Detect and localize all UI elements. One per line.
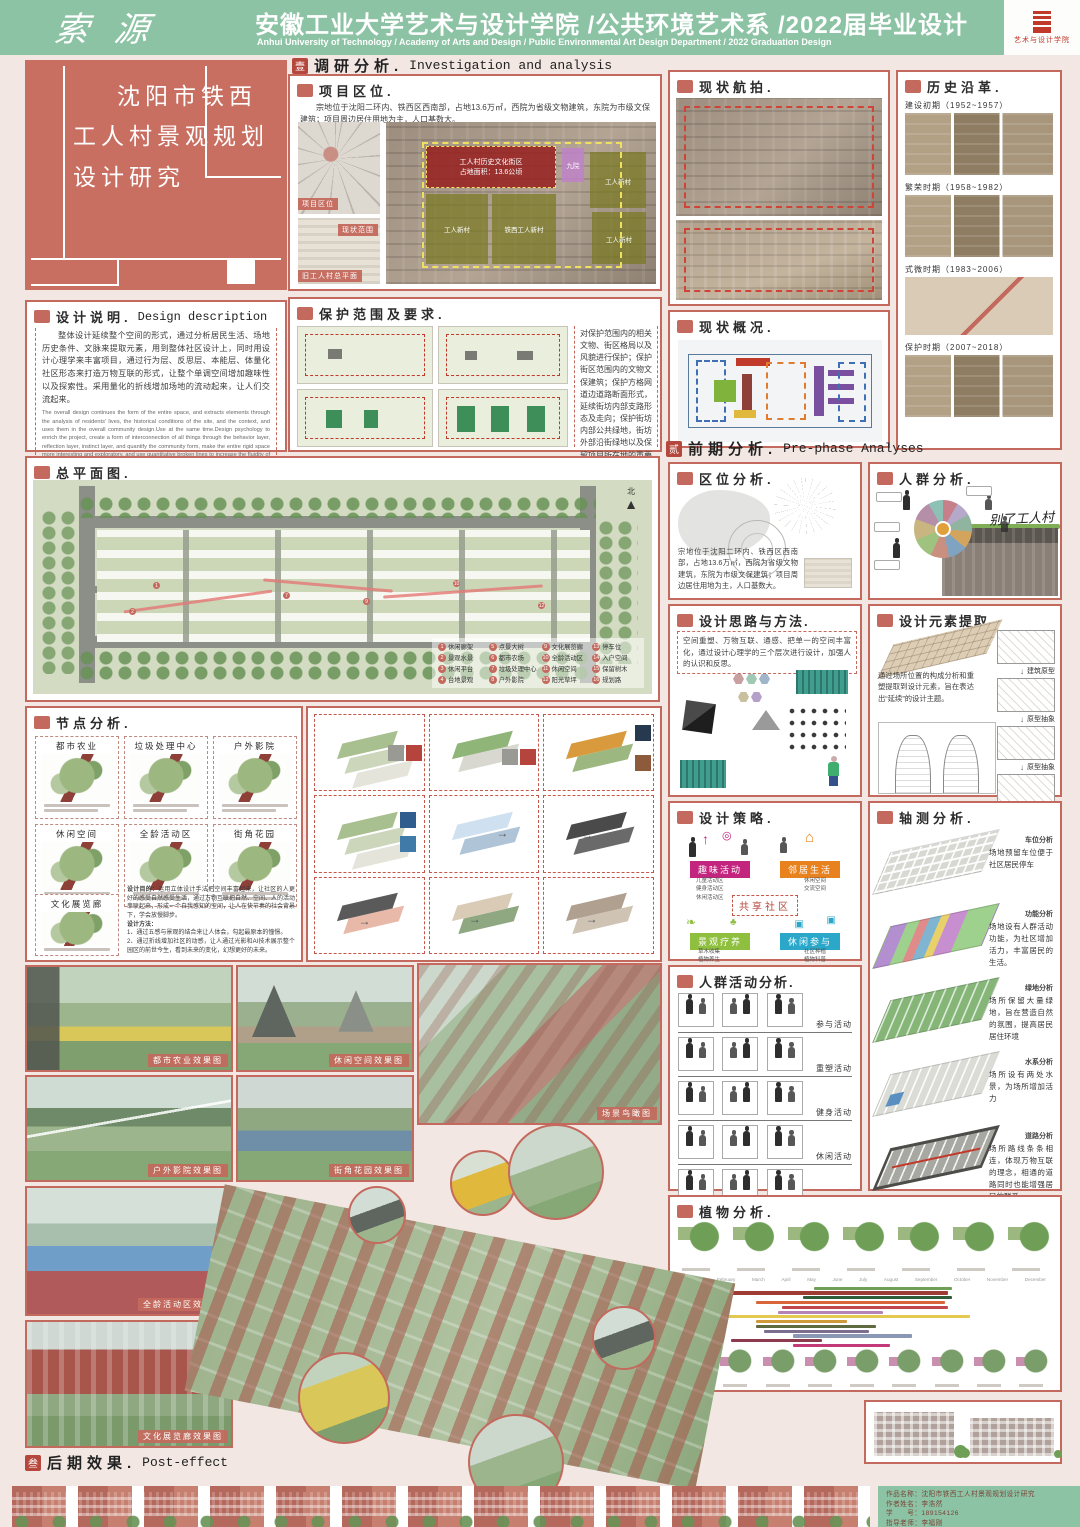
history-period-label: 式微时期（1983~2006）	[905, 264, 1053, 275]
title-marker	[34, 310, 50, 323]
calligraphy-text: 别了工人村	[989, 506, 1055, 528]
panel-title: 设计说明.	[56, 307, 132, 326]
hexagon	[746, 674, 757, 684]
legend-item: 10 全龄活动区	[542, 653, 588, 662]
history-photo-mosaic	[905, 195, 1053, 257]
panel-title: 保护范围及要求.	[319, 304, 446, 323]
node-card: 户外影院	[213, 736, 297, 819]
hexagon	[759, 674, 770, 684]
legend-label: 规划路	[602, 675, 621, 684]
scene-photo-teal-2	[680, 760, 726, 788]
month-label: April	[781, 1277, 790, 1282]
activity-rows: 参与活动 重塑活动 健身活动	[678, 993, 852, 1213]
location-analysis-text: 宗地位于沈阳二环内、铁西区西南部，占地13.6万㎡，西院为省级文物建筑，东院为市…	[678, 546, 798, 591]
render-allage-area: 全龄活动区效果图	[25, 1186, 233, 1316]
node-card: 垃圾处理中心	[124, 736, 208, 819]
person-silhouette	[893, 543, 900, 558]
legend-number: 5	[489, 643, 497, 651]
arrow-icon: →	[496, 826, 508, 840]
title-marker	[677, 1205, 693, 1218]
activity-thumbnail	[678, 1125, 714, 1159]
element-step-labelrow: ↓ 原型抽象	[997, 762, 1055, 772]
activity-row: 健身活动	[678, 1081, 852, 1121]
protection-plan-1	[297, 326, 433, 384]
panel-title-row: 设计思路与方法.	[677, 611, 860, 630]
section3-title-cn: 后期效果.	[47, 1452, 136, 1473]
flowering-bars-chart	[684, 1285, 1046, 1349]
panel-title-en: Design description	[138, 310, 268, 324]
person-silhouette	[686, 1175, 693, 1190]
month-label: July	[859, 1277, 867, 1282]
collage-circle-sculpture	[450, 1150, 516, 1216]
panel-aerial-photos: 现状航拍.	[668, 70, 890, 306]
render-outdoor-cinema: 户外影院效果图	[25, 1075, 233, 1182]
node-image	[41, 842, 113, 890]
section1-header: 壹 调研分析. Investigation and analysis	[292, 55, 612, 76]
flowering-bar	[814, 1287, 952, 1290]
legend-number: 7	[489, 665, 497, 673]
panel-title: 节点分析.	[56, 713, 132, 732]
render-label: 文化展览廊效果图	[138, 1430, 228, 1443]
render-urban-farm: 都市农业效果图	[25, 965, 233, 1072]
up-arrow-icon: ↑	[702, 831, 709, 847]
person-silhouette	[730, 1047, 737, 1058]
month-label: November	[987, 1277, 1008, 1282]
footer-student-id: 学 号：189154126	[886, 1509, 1072, 1519]
protection-plan-4	[438, 389, 568, 447]
speech-bubble	[874, 560, 900, 570]
plant-row-top	[678, 1221, 1052, 1273]
person-silhouette	[730, 1179, 737, 1190]
node-card: 都市农业	[35, 736, 119, 819]
exploded-axon-drawing	[566, 812, 626, 840]
spiral-icon: ◎	[722, 829, 732, 842]
status-block-yellow	[734, 410, 756, 418]
tree-band-left	[41, 510, 79, 674]
history-photo-mosaic	[905, 355, 1053, 417]
history-photo-mosaic	[905, 277, 1053, 335]
college-logo-icon	[1033, 11, 1051, 33]
element-step: ↓ 原型抽象	[997, 726, 1055, 774]
plant-item	[763, 1349, 799, 1389]
flowering-bar	[782, 1306, 949, 1309]
history-period: 式微时期（1983~2006）	[905, 262, 1053, 335]
placeholder-caption-line	[44, 804, 110, 807]
plan-marker: 1	[153, 582, 160, 589]
flowering-bar	[803, 1296, 951, 1299]
title-marker	[677, 975, 693, 988]
flowering-bar	[691, 1315, 970, 1318]
section3-header: 叁 后期效果. Post-effect	[25, 1452, 228, 1473]
person-silhouette	[743, 1131, 750, 1146]
panel-element-extraction: 设计元素提取. 通过场所位置的构成分析和重塑提取到设计元素，旨在表达出“延续”的…	[868, 604, 1062, 797]
history-period-label: 保护时期（2007~2018）	[905, 342, 1053, 353]
history-period-label: 繁荣时期（1958~1982）	[905, 182, 1053, 193]
plan-marker: 2	[129, 608, 136, 615]
tree-icon: ♣	[730, 917, 737, 928]
legend-label: 入户空间	[602, 653, 627, 662]
panel-project-location: 项目区位. 宗地位于沈阳二环内、铁西区西南部，占地13.6万㎡，西院为省级文物建…	[288, 74, 662, 291]
college-badge: 艺术与设计学院	[1004, 0, 1080, 55]
house-icon: ⌂	[805, 829, 814, 846]
panel-title-row: 植物分析.	[677, 1202, 1060, 1221]
element-step-image	[997, 726, 1055, 760]
activity-thumbnail	[767, 993, 803, 1027]
method-text-box: 空间重塑、万物互联、通感、把单一的空间丰富化，通过设计心理学的三个层次进行设计，…	[677, 631, 857, 674]
bottom-elevation-strip	[12, 1486, 870, 1527]
hexagon	[733, 674, 744, 684]
person-silhouette	[741, 844, 748, 855]
axon-caption-text: 场所路线条条相连，体现万物互联的理念，相通的道路同时也能增强居民的联系	[989, 1143, 1053, 1203]
activity-thumbnail	[722, 1037, 758, 1071]
flowering-bar	[756, 1301, 944, 1304]
element-step-image	[997, 630, 1055, 664]
panel-title-row: 设计说明.Design description	[34, 307, 285, 326]
axon-slab-road	[872, 1125, 1000, 1191]
collage-circle-detail	[592, 1306, 656, 1370]
panel-title-row: 设计策略.	[677, 808, 860, 827]
panel-title: 区位分析.	[699, 469, 775, 488]
road-network-image	[774, 478, 836, 534]
legend-number: 3	[438, 665, 446, 673]
person-silhouette	[686, 1043, 693, 1058]
legend-label: 景观水景	[448, 653, 473, 662]
panel-title: 人群活动分析.	[699, 972, 795, 991]
logo-calligraphy: 索源	[52, 2, 249, 51]
legend-item: 9 文化展览廊	[542, 642, 588, 651]
scene-photo-teal-1	[796, 670, 848, 694]
legend-item: 16 规划路	[592, 675, 638, 684]
axon-layers: 车位分析场地预留车位便于社区居民停车 功能分析场地设有人群活动功能，为社区增加活…	[874, 827, 1056, 1197]
panel-title-row: 项目区位.	[297, 81, 660, 100]
section1-title-en: Investigation and analysis	[409, 58, 612, 73]
node-cards: 都市农业 垃圾处理中心 户外影院	[35, 736, 297, 907]
aerial-photo-2	[676, 220, 882, 300]
flowering-bar	[793, 1334, 912, 1337]
panel-axon-analysis: 轴测分析. 车位分析场地预留车位便于社区居民停车 功能分析场地设有人群活动功能，…	[868, 801, 1062, 1191]
college-badge-label: 艺术与设计学院	[1014, 35, 1070, 45]
element-step: ↓ 原型抽象	[997, 678, 1055, 726]
month-label: October	[954, 1277, 970, 1282]
standing-figure	[828, 762, 839, 776]
crowd-wheel-diagram	[914, 500, 972, 558]
render-label: 户外影院效果图	[148, 1164, 228, 1177]
render-label: 场景鸟瞰图	[597, 1107, 657, 1120]
placeholder-caption-line	[44, 948, 110, 951]
tile-icon: ▣	[795, 919, 804, 930]
person-silhouette	[686, 999, 693, 1014]
flowering-bar	[793, 1344, 891, 1347]
axon-detail-cell	[314, 795, 425, 872]
panel-title: 现状概况.	[699, 317, 775, 336]
person-silhouette	[780, 842, 787, 853]
panel-strategy: 设计策略. ↑ ◎ ⌂ 趣味活动 儿童活动区 健身活动区 休闲活动区 邻居生活 …	[668, 801, 862, 961]
node-name: 都市农业	[36, 740, 118, 752]
seal-one-icon: 壹	[292, 58, 308, 74]
plant-item	[974, 1349, 1010, 1389]
qr-placeholder	[227, 260, 255, 284]
method-item-1: 1、通过五感与景观的结合来让人体会，勾起最原本的憧憬。	[127, 929, 295, 938]
old-plan-sketch-image: 现状范围 旧工人村总平面	[298, 218, 380, 284]
title-marker	[677, 320, 693, 333]
panel-title-row: 历史沿革.	[905, 77, 1060, 96]
title-marker	[34, 716, 50, 729]
arrow-icon: →	[581, 828, 593, 842]
tree-icon	[960, 1448, 970, 1458]
activity-thumbnail	[722, 1125, 758, 1159]
activity-thumbnail	[678, 1037, 714, 1071]
material-swatch	[388, 745, 404, 761]
divider	[117, 258, 119, 284]
person-silhouette	[699, 1003, 706, 1014]
poster-title: 安徽工业大学艺术与设计学院 /公共环境艺术系 /2022届毕业设计	[255, 5, 968, 40]
person-silhouette	[743, 1043, 750, 1058]
axon-caption-label: 水系分析	[989, 1057, 1053, 1067]
month-label: June	[833, 1277, 843, 1282]
axon-slab-function	[872, 903, 1000, 969]
legend-label: 都市农场	[499, 653, 524, 662]
strategy-q3-subs: 草木收集 植物养生	[698, 948, 720, 965]
person-silhouette	[788, 1135, 795, 1146]
plant-icon: ❧	[686, 915, 696, 929]
status-block-green	[714, 380, 736, 402]
exploded-axon-drawing	[452, 893, 512, 921]
legend-item: 6 都市农场	[489, 653, 537, 662]
legend-number: 16	[592, 676, 600, 684]
legend-label: 文化展览廊	[552, 642, 583, 651]
person-silhouette	[788, 1003, 795, 1014]
axon-slab-green	[872, 977, 1000, 1043]
flowering-bar	[756, 1320, 847, 1323]
location-map-image: 项目区位	[298, 122, 380, 214]
project-title-line3: 设计研究	[73, 157, 269, 197]
panel-title: 设计策略.	[699, 808, 775, 827]
person-silhouette	[775, 999, 782, 1014]
axon-layer-green: 绿地分析场所保留大量绿地，旨在营造自然的氛围，提高居民居住环境	[874, 975, 1056, 1049]
figure-grid-image	[788, 706, 846, 752]
legend-item: 7 垃圾处理中心	[489, 664, 537, 673]
render-label: 休闲空间效果图	[329, 1054, 409, 1067]
activity-row: 重塑活动	[678, 1037, 852, 1077]
legend-number: 9	[542, 643, 550, 651]
axon-detail-cell	[314, 714, 425, 791]
aerial-collage	[236, 1186, 662, 1462]
status-block-blue2	[838, 362, 866, 422]
flowering-bar	[778, 1311, 883, 1314]
panel-title: 设计思路与方法.	[699, 611, 810, 630]
protection-text-box: 对保护范围内的相关文物、街区格局以及风貌进行保护；保护街区范围内的文物文保建筑；…	[574, 326, 658, 447]
footer-author: 作者姓名：李浩然	[886, 1500, 1072, 1510]
legend-label: 保留树木	[602, 664, 627, 673]
month-axis: JanuaryFebruaryMarchAprilMayJuneJulyAugu…	[684, 1277, 1046, 1282]
panel-design-description: 设计说明.Design description 整体设计延续整个空间的形式，通过…	[25, 300, 287, 452]
legend-number: 11	[542, 665, 550, 673]
axon-layer-road: 道路分析场所路线条条相连，体现万物互联的理念，相通的道路同时也能增强居民的联系	[874, 1123, 1056, 1197]
section2-title-cn: 前期分析.	[688, 438, 777, 459]
person-silhouette	[775, 1043, 782, 1058]
node-name: 垃圾处理中心	[125, 740, 207, 752]
chimney-sketch	[878, 722, 996, 794]
panel-elevation	[864, 1400, 1062, 1464]
render-bird-view: 场景鸟瞰图	[417, 963, 662, 1125]
legend-item: 3 休闲平台	[438, 664, 484, 673]
material-swatch	[400, 812, 416, 828]
panel-status-overview: 现状概况.	[668, 310, 890, 448]
material-swatch	[406, 745, 422, 761]
legend-item: 13 停车位	[592, 642, 638, 651]
plant-row-bottom	[678, 1349, 1052, 1389]
legend-item: 5 点景大树	[489, 642, 537, 651]
history-period-label: 建设初期（1952~1957）	[905, 100, 1053, 111]
element-step-labelrow: ↓ 建筑原型	[997, 666, 1055, 676]
axon-slab-water	[872, 1051, 1000, 1117]
five-senses-diagram	[732, 672, 771, 708]
axon-layer-water: 水系分析场所设有两处水景，为场所增加活力	[874, 1049, 1056, 1123]
material-swatch	[520, 749, 536, 765]
panel-title-row: 节点分析.	[34, 713, 301, 732]
title-marker	[877, 472, 893, 485]
person-silhouette	[699, 1047, 706, 1058]
plant-item	[889, 1349, 925, 1389]
month-label: March	[752, 1277, 765, 1282]
activity-thumbnail	[767, 1037, 803, 1071]
poster-subtitle: Anhui University of Technology / Academy…	[257, 37, 831, 47]
north-arrow-icon: 北▲	[624, 488, 638, 512]
chimney-outline	[943, 735, 979, 793]
panel-title: 现状航拍.	[699, 77, 775, 96]
placeholder-caption-line	[222, 804, 288, 807]
axon-layer-function: 功能分析场地设有人群活动功能，为社区增加活力，丰富居民的生活。	[874, 901, 1056, 975]
seal-three-icon: 叁	[25, 1455, 41, 1471]
status-block-orange	[766, 362, 806, 420]
masterplan-legend: 1 休闲廊架 5 点景大树 9 文化展览廊 13	[432, 638, 644, 688]
node-name: 户外影院	[214, 740, 296, 752]
panel-title: 历史沿革.	[927, 77, 1003, 96]
tree-band-top	[79, 496, 596, 518]
axon-detail-grid: → → → → →	[314, 714, 654, 954]
node-purpose-text: 设计目的：运用立体设计手法把空间丰富起来，让社区的人更好的感受自然感受生活，通过…	[127, 886, 295, 956]
axon-caption-label: 绿地分析	[989, 983, 1053, 993]
exploded-axon-drawing	[337, 812, 397, 840]
axon-caption-label: 功能分析	[989, 909, 1053, 919]
person-silhouette	[686, 1131, 693, 1146]
iso-cube-image	[682, 700, 716, 734]
node-name: 文化展览廊	[36, 898, 118, 910]
photo-swatch	[635, 755, 651, 771]
project-title-line2: 工人村景观规划	[73, 116, 269, 156]
panel-title-row: 现状概况.	[677, 317, 888, 336]
person-silhouette	[699, 1179, 706, 1190]
legend-number: 12	[542, 676, 550, 684]
flowering-bar	[731, 1339, 822, 1342]
strategy-q2-label: 邻居生活	[780, 861, 840, 878]
status-range-badge: 现状范围	[338, 224, 378, 236]
speech-bubble	[876, 492, 902, 502]
panel-activity-analysis: 人群活动分析. 参与活动 重塑活动	[668, 965, 862, 1191]
activity-thumbnail	[767, 1081, 803, 1115]
legend-item: 2 景观水景	[438, 653, 484, 662]
poster-header: 索源 安徽工业大学艺术与设计学院 /公共环境艺术系 /2022届毕业设计 Anh…	[0, 0, 1080, 55]
legend-number: 10	[542, 654, 550, 662]
history-period: 建设初期（1952~1957）	[905, 98, 1053, 175]
node-card-culture: 文化展览廊	[35, 894, 119, 956]
method-text: 空间重塑、万物互联、通感、把单一的空间丰富化，通过设计心理学的三个层次进行设计，…	[683, 635, 851, 670]
site-boundary	[422, 142, 622, 268]
title-marker	[297, 307, 313, 320]
person-silhouette	[985, 499, 992, 510]
site-aerial-image: 工人村历史文化街区 占地面积：13.6公顷 九院 工人新村 铁西工人新村 工人新…	[386, 122, 656, 284]
axon-caption-text: 场所保留大量绿地，旨在营造自然的氛围，提高居民居住环境	[989, 995, 1053, 1043]
status-block-purple1	[814, 366, 824, 416]
render-label: 街角花园效果图	[329, 1164, 409, 1177]
speech-bubble	[966, 486, 992, 496]
person-silhouette	[689, 842, 696, 857]
person-silhouette	[730, 1091, 737, 1102]
plant-item	[847, 1349, 883, 1389]
element-step: ↓ 建筑原型	[997, 630, 1055, 678]
collage-circle-aframe	[508, 1124, 604, 1220]
panel-title: 项目区位.	[319, 81, 395, 100]
placeholder-caption-line	[133, 804, 199, 807]
legend-label: 阳光草坪	[552, 675, 577, 684]
history-photo-mosaic	[905, 113, 1053, 175]
history-periods: 建设初期（1952~1957） 繁荣时期（1958~1982） 式微时期（198…	[905, 98, 1053, 417]
divider	[63, 66, 65, 258]
down-arrow-icon: ↓	[1020, 763, 1024, 772]
old-plan-badge: 旧工人村总平面	[298, 270, 362, 282]
panel-title-row: 保护范围及要求.	[297, 304, 660, 323]
axon-detail-cell: →	[429, 877, 540, 954]
legend-item: 4 台地景观	[438, 675, 484, 684]
node-image	[219, 842, 291, 890]
legend-number: 13	[592, 643, 600, 651]
person-silhouette	[788, 1179, 795, 1190]
activity-thumbnail	[678, 993, 714, 1027]
legend-item: 11 休闲空间	[542, 664, 588, 673]
location-analysis-textwrap: 宗地位于沈阳二环内、铁西区西南部，占地13.6万㎡，西院为省级文物建筑，东院为市…	[678, 546, 798, 591]
method-item-2: 2、通过折线增加社区的动感，让人通过光影和AI技术展示整个园区的前世今生，看到未…	[127, 938, 295, 955]
section2-title-en: Pre-phase Analyses	[783, 441, 923, 456]
arrow-icon: →	[358, 914, 370, 928]
history-period: 保护时期（2007~2018）	[905, 340, 1053, 417]
poster: 索源 安徽工业大学艺术与设计学院 /公共环境艺术系 /2022届毕业设计 Anh…	[0, 0, 1080, 1527]
legend-label: 休闲廊架	[448, 642, 473, 651]
panel-location-analysis: 区位分析. 宗地位于沈阳二环内、铁西区西南部，占地13.6万㎡，西院为省级文物建…	[668, 462, 862, 600]
plan-marker: 7	[283, 592, 290, 599]
legend-label: 户外影院	[499, 675, 524, 684]
render-label: 都市农业效果图	[148, 1054, 228, 1067]
material-swatch	[502, 749, 518, 765]
exploded-axon-drawing	[566, 730, 626, 758]
axon-caption-text: 场地预留车位便于社区居民停车	[989, 847, 1053, 871]
node-name: 休闲空间	[36, 828, 118, 840]
project-title-line1: 沈阳市铁西	[73, 76, 269, 116]
arrow-icon: →	[586, 912, 598, 926]
activity-row-label: 重塑活动	[816, 1063, 852, 1074]
legend-number: 15	[592, 665, 600, 673]
speech-bubble	[874, 522, 900, 532]
section2-header: 贰 前期分析. Pre-phase Analyses	[666, 438, 924, 459]
footer-project: 作品名称：沈阳市铁西工人村景观规划设计研究	[886, 1490, 1072, 1500]
person-silhouette	[788, 1091, 795, 1102]
node-image	[130, 754, 202, 802]
design-description-box: 整体设计延续整个空间的形式，通过分析居民生活、场地历史条件、文脉来提取元素，用到…	[35, 328, 277, 470]
strategy-q2-subs: 休闲空间 交流空间	[804, 877, 826, 894]
person-silhouette	[775, 1087, 782, 1102]
plant-item	[805, 1349, 841, 1389]
project-title-block: 沈阳市铁西 工人村景观规划 设计研究	[25, 60, 287, 290]
legend-label: 垃圾处理中心	[499, 664, 537, 673]
